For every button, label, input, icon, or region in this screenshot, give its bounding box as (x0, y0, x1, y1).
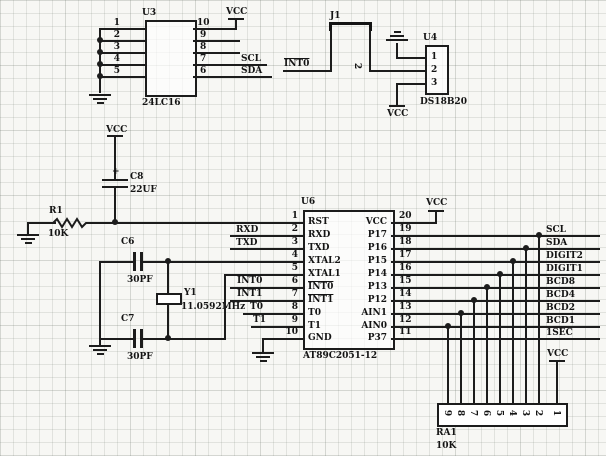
wire (473, 300, 475, 403)
j1-pin-number: 2 (352, 63, 362, 69)
net-label-txd: TXD (236, 238, 258, 248)
wire (396, 57, 425, 59)
net-label-sda: SDA (546, 238, 567, 248)
u6-pin-name: TXD (308, 243, 330, 253)
ra1-pin-number: 5 (494, 410, 504, 416)
net-label-digit2: DIGIT2 (546, 251, 583, 261)
c6-value: 30PF (127, 275, 153, 285)
r1-value: 10K (48, 229, 68, 239)
u6-pin-number: 15 (399, 276, 412, 286)
u6-pin-number: 2 (270, 224, 298, 234)
u3-pin-number: 4 (104, 54, 120, 64)
vcc-label: VCC (426, 198, 447, 208)
resistor-zigzag-icon (53, 217, 89, 229)
u6-part-label: AT89C2051-12 (303, 351, 377, 361)
wire (193, 76, 272, 78)
junction-dot (97, 37, 103, 43)
wire (486, 287, 488, 403)
net-label-scl: SCL (546, 225, 566, 235)
wire (396, 83, 398, 106)
wire (27, 222, 56, 224)
wire (391, 261, 600, 263)
ground-icon (89, 343, 111, 355)
u3-body (145, 20, 197, 97)
u6-pin-number: 9 (270, 315, 298, 325)
vcc-label: VCC (226, 7, 247, 17)
u6-pin-name: INT1 (308, 295, 333, 305)
net-label-bcd4: BCD4 (546, 290, 575, 300)
net-label-1sec: 1SEC (546, 328, 573, 338)
wire (391, 248, 600, 250)
wire (391, 274, 600, 276)
net-label-scl: SCL (241, 54, 261, 64)
u6-pin-number: 1 (270, 211, 298, 221)
capacitor-plate (133, 329, 136, 348)
u4-pin-number: 1 (431, 52, 437, 62)
wire (369, 70, 425, 72)
u6-pin-number: 10 (270, 327, 298, 337)
wire (283, 70, 332, 72)
u4-pin-number: 2 (431, 65, 437, 75)
wire (167, 261, 169, 293)
u6-pin-name: GND (308, 333, 332, 343)
u3-pin-number: 7 (200, 54, 206, 64)
ground-icon (89, 92, 111, 104)
u3-pin-number: 2 (104, 30, 120, 40)
u6-pin-name: VCC (336, 217, 387, 227)
u4-pin-number: 3 (431, 78, 437, 88)
wire (99, 261, 101, 345)
j1-refdes: J1 (330, 11, 341, 21)
net-label-t1: T1 (253, 315, 266, 325)
c7-value: 30PF (127, 352, 153, 362)
ra1-value: 10K (436, 441, 456, 451)
net-label-bcd2: BCD2 (546, 303, 575, 313)
wire (100, 338, 133, 340)
y1-value: 11.0592MHz (181, 302, 245, 312)
wire (391, 313, 600, 315)
wire (167, 305, 169, 338)
schematic-canvas: U3 24LC16 1 2 3 4 5 VCC 10 9 8 7 6 SCL (0, 0, 606, 456)
u6-pin-name: P13 (336, 282, 387, 292)
c6-refdes: C6 (121, 237, 134, 247)
u6-pin-number: 19 (399, 224, 412, 234)
u3-part-label: 24LC16 (142, 98, 181, 108)
u6-pin-number: 20 (399, 211, 412, 221)
u6-pin-name: P12 (336, 295, 387, 305)
c8-refdes: C8 (130, 172, 143, 182)
u4-part-label: DS18B20 (420, 97, 467, 107)
u6-pin-name: AIN0 (336, 321, 387, 331)
u6-pin-number: 13 (399, 302, 412, 312)
u6-pin-number: 6 (270, 276, 298, 286)
wire (525, 248, 527, 403)
ra1-pin-number: 6 (481, 410, 491, 416)
vcc-label: VCC (547, 349, 568, 359)
wire (263, 338, 303, 340)
net-label-rxd: RXD (236, 225, 258, 235)
u6-pin-number: 11 (399, 327, 412, 337)
c8-value: 22UF (130, 185, 157, 195)
u6-pin-number: 4 (270, 250, 298, 260)
u6-pin-name: P16 (336, 243, 387, 253)
net-label-t0: T0 (250, 302, 263, 312)
u6-pin-name: INT0 (308, 282, 333, 292)
ra1-pin-number: 7 (468, 410, 478, 416)
u6-pin-number: 17 (399, 250, 412, 260)
wire (391, 300, 600, 302)
u4-refdes: U4 (423, 33, 437, 43)
u6-pin-name: RST (308, 217, 329, 227)
vcc-label: VCC (106, 125, 127, 135)
wire (538, 235, 540, 403)
u3-pin-number: 6 (200, 66, 206, 76)
ra1-pin-number: 4 (507, 410, 517, 416)
wire (224, 274, 226, 340)
vcc-bar-icon (389, 105, 405, 107)
u6-pin-name: P15 (336, 256, 387, 266)
wire (396, 83, 425, 85)
u6-refdes: U6 (301, 197, 315, 207)
junction-dot (97, 73, 103, 79)
u6-pin-number: 14 (399, 289, 412, 299)
ra1-pin-number: 2 (533, 410, 543, 416)
y1-refdes: Y1 (184, 288, 197, 298)
u6-pin-number: 18 (399, 237, 412, 247)
u6-pin-name: P37 (336, 333, 387, 343)
ground-icon (386, 29, 408, 41)
u6-pin-name: P17 (336, 230, 387, 240)
u6-pin-number: 8 (270, 302, 298, 312)
ra1-pin-number: 1 (551, 410, 561, 416)
wire (512, 261, 514, 403)
u3-pin-number: 3 (104, 42, 120, 52)
wire (143, 338, 226, 340)
wire (447, 326, 449, 403)
u6-pin-number: 5 (270, 263, 298, 273)
wire (391, 287, 600, 289)
u3-pin-number: 5 (104, 66, 120, 76)
wire (435, 212, 437, 222)
net-label-sda: SDA (241, 66, 262, 76)
junction-dot (97, 61, 103, 67)
wire (556, 362, 558, 403)
ground-icon (17, 232, 39, 244)
wire (330, 30, 332, 71)
jumper-bracket-icon (329, 22, 372, 25)
wire (235, 20, 237, 28)
u6-pin-number: 3 (270, 237, 298, 247)
r1-refdes: R1 (49, 206, 63, 216)
crystal-body (156, 293, 182, 305)
u6-pin-number: 7 (270, 289, 298, 299)
net-label-digit1: DIGIT1 (546, 264, 583, 274)
net-label-int1: INT1 (237, 289, 262, 299)
wire (396, 43, 398, 58)
c8-polarity: + (112, 167, 120, 177)
wire (391, 235, 600, 237)
u6-pin-name: AIN1 (336, 308, 387, 318)
wire (100, 261, 133, 263)
ra1-refdes: RA1 (436, 428, 457, 438)
capacitor-plate (102, 179, 128, 181)
junction-dot (97, 49, 103, 55)
c7-refdes: C7 (121, 314, 134, 324)
wire (369, 30, 371, 71)
u3-pin-number: 9 (200, 30, 206, 40)
wire (100, 76, 145, 78)
u3-pin-number: 8 (200, 42, 206, 52)
net-label-int0: INT0 (237, 276, 262, 286)
wire (391, 338, 600, 340)
net-label-bcd1: BCD1 (546, 316, 575, 326)
u6-pin-name: T1 (308, 321, 321, 331)
vcc-label: VCC (387, 109, 408, 119)
u6-pin-name: T0 (308, 308, 321, 318)
ra1-pin-number: 9 (442, 410, 452, 416)
u6-pin-name: P14 (336, 269, 387, 279)
wire (391, 222, 437, 224)
u3-refdes: U3 (142, 8, 156, 18)
u6-pin-number: 16 (399, 263, 412, 273)
ground-icon (252, 350, 274, 362)
net-label-bcd8: BCD8 (546, 277, 575, 287)
u6-pin-number: 12 (399, 315, 412, 325)
wire (460, 313, 462, 403)
u3-pin-number: 10 (197, 18, 210, 28)
u3-pin-number: 1 (104, 18, 120, 28)
wire (499, 274, 501, 403)
ra1-pin-number: 3 (520, 410, 530, 416)
net-label-int0: INT0 (284, 59, 309, 69)
capacitor-plate (133, 252, 136, 271)
ra1-pin-number: 8 (455, 410, 465, 416)
u6-pin-name: RXD (308, 230, 330, 240)
vcc-bar-icon (428, 210, 444, 212)
vcc-bar-icon (228, 18, 244, 20)
